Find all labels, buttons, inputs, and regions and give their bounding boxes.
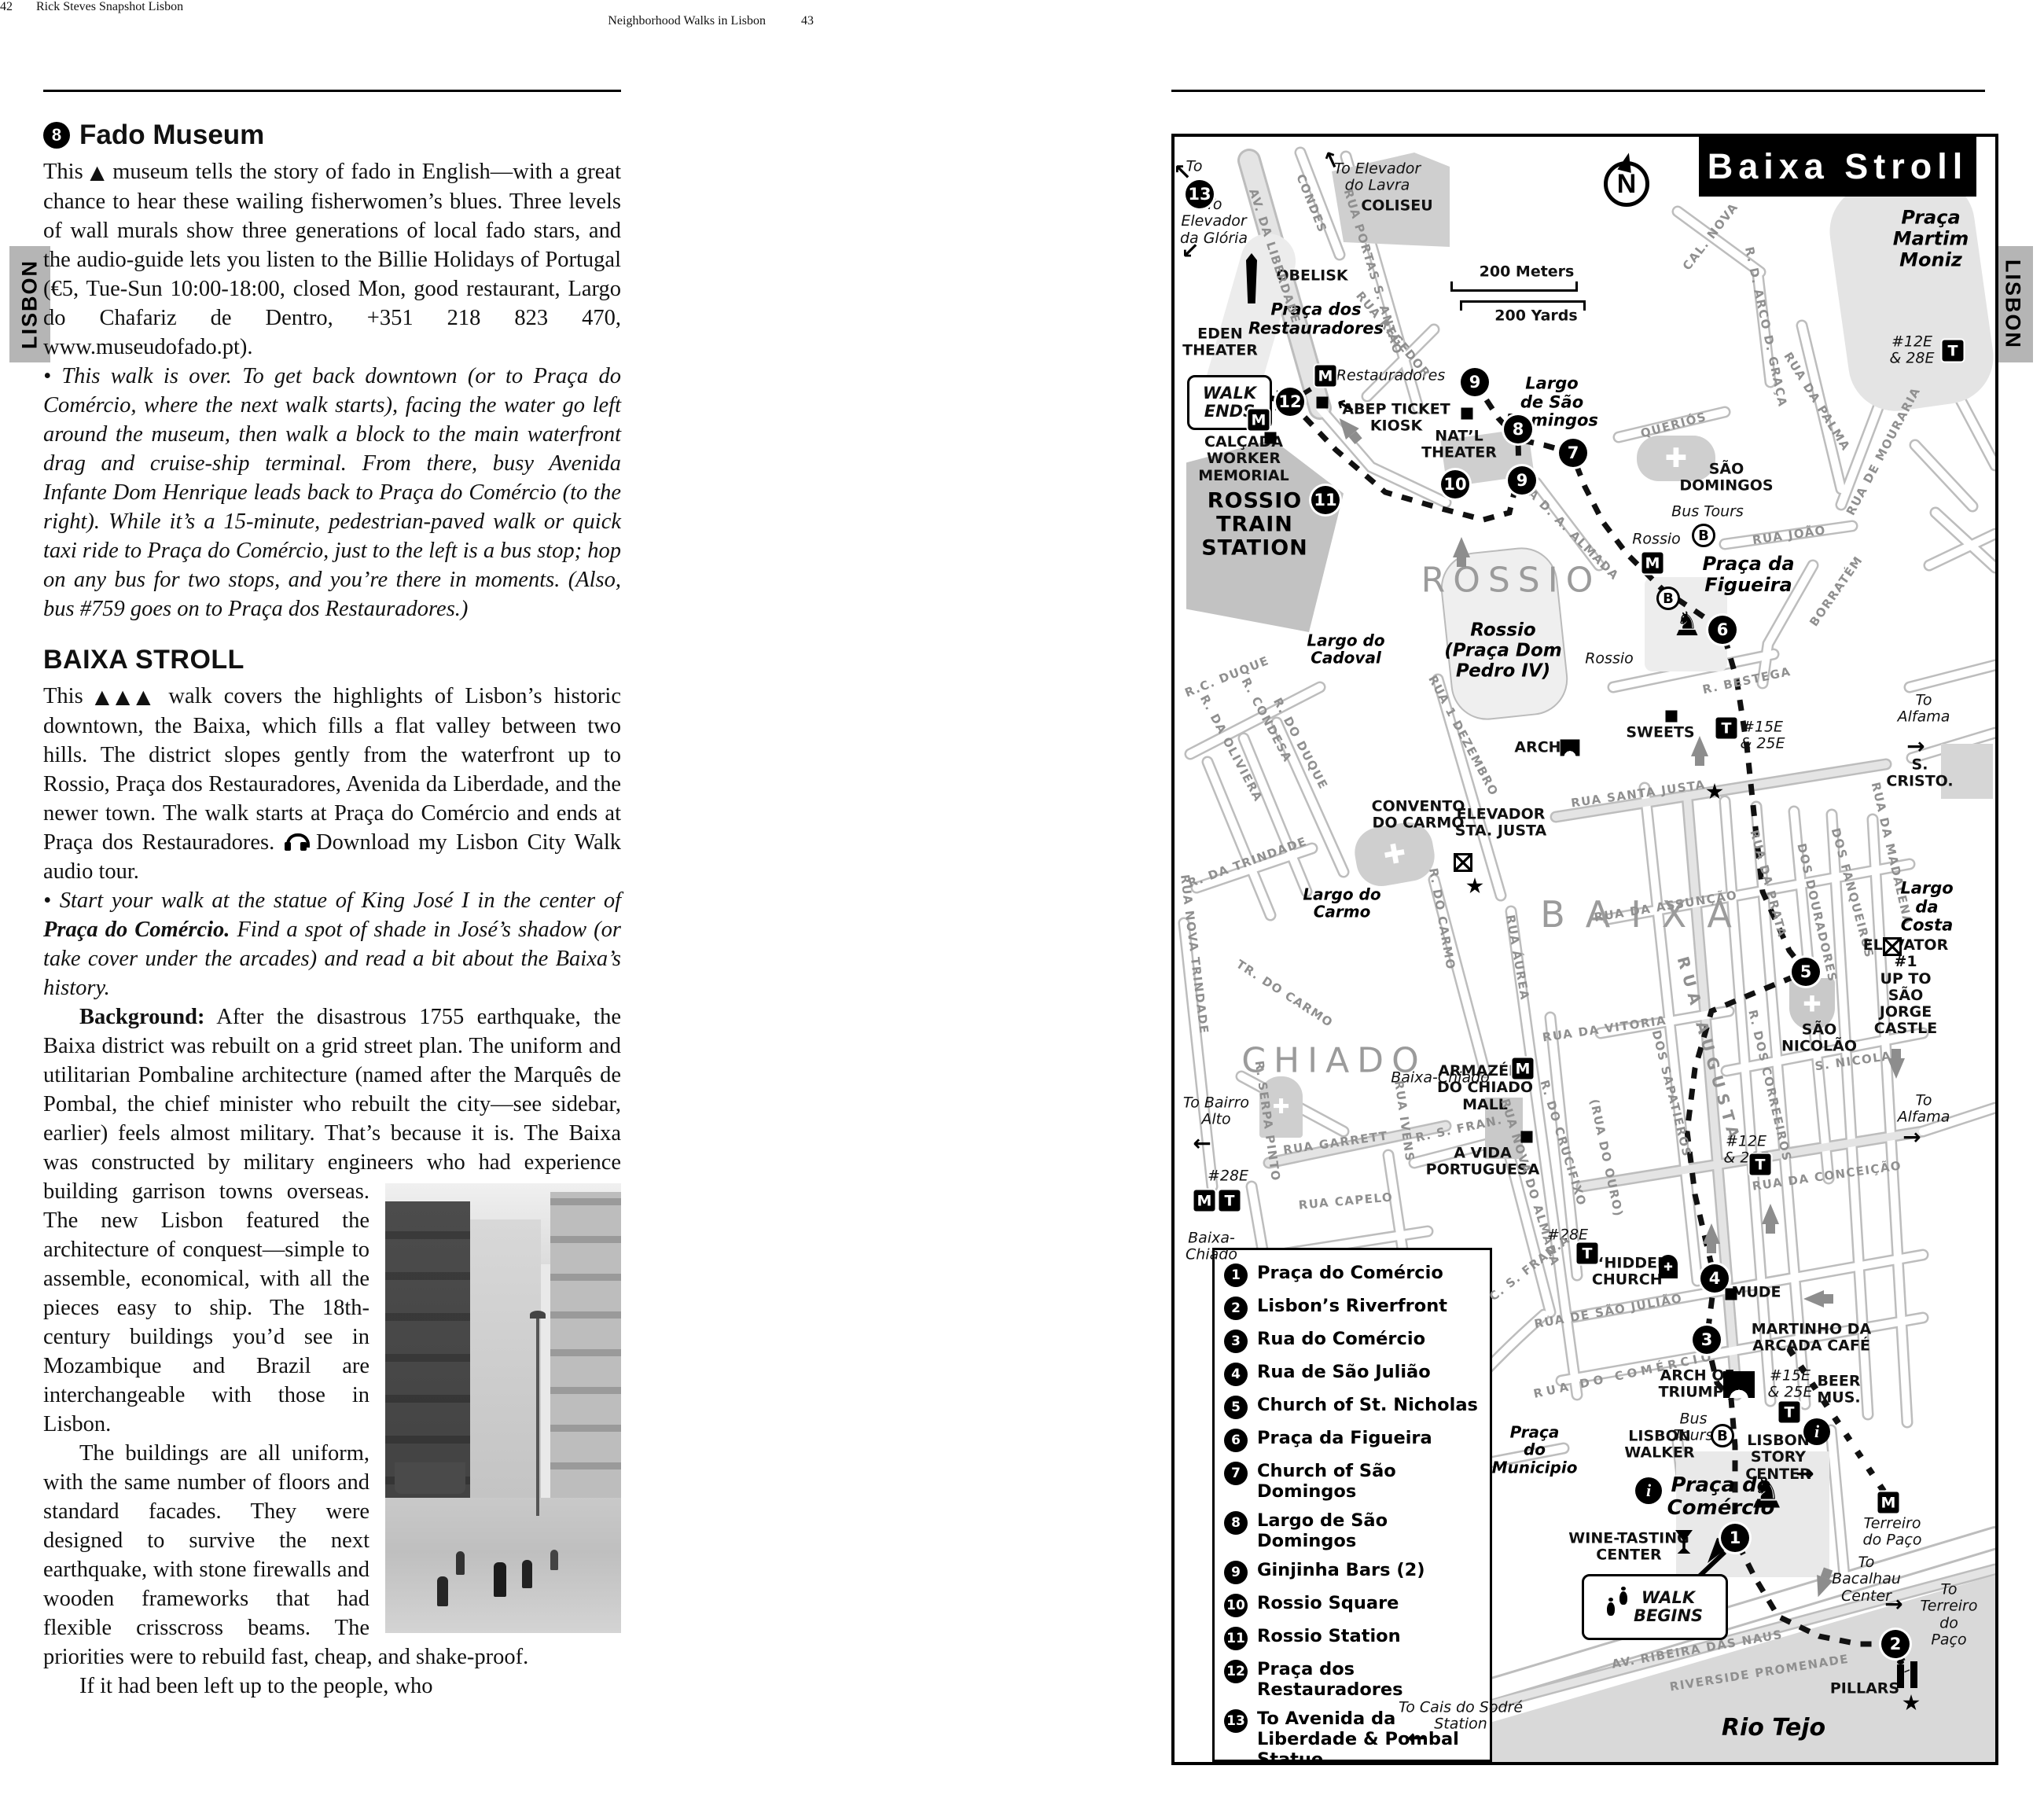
viewpoint-icon [1466, 877, 1483, 895]
pedestrian [494, 1562, 506, 1597]
baixa-stroll-map: ✚ ✚ ✚ ✚ Baixa Stroll WALK ENDS WALK BEGI… [1171, 134, 1998, 1765]
map-label: Praça do Municipio [1492, 1423, 1578, 1476]
closing-paragraph: If it had been left up to the people, wh… [43, 1672, 621, 1701]
tram-icon: T [1779, 1402, 1800, 1423]
street-label: R. DO CRUCIFIXO [1538, 1079, 1589, 1208]
route-direction-arrow-icon [1888, 1058, 1905, 1079]
map-stop-9: 9 [1508, 466, 1536, 495]
map-label: ELEVATOR #1 UP TO SÃO JORGE CASTLE [1861, 937, 1950, 1038]
sight-diamond-icon [1666, 711, 1678, 723]
page-number-left: 42 [0, 0, 13, 14]
map-stop-7: 7 [1559, 439, 1587, 467]
map-label: Bus Tours [1671, 503, 1744, 520]
map-label: Baixa- Chiado [1186, 1230, 1237, 1264]
tram-icon: T [1219, 1190, 1241, 1212]
map-label: SÃO DOMINGOS [1679, 462, 1773, 495]
map-stop-12: 12 [1276, 388, 1304, 416]
praca-comercio-bold: Praça do Comércio. [43, 918, 230, 942]
street-label: RUA CAPELO [1298, 1190, 1394, 1212]
map-stop-5: 5 [1792, 958, 1820, 986]
map-stop-8: 8 [1504, 415, 1532, 443]
map-label: Largo do Carmo [1303, 886, 1380, 921]
map-label: Rossio [1632, 531, 1681, 547]
sight-diamond-icon [1726, 1289, 1737, 1300]
route-direction-arrow-icon [1810, 1575, 1833, 1600]
route-direction-arrow-icon [1762, 1204, 1779, 1224]
map-label: EDEN THEATER [1182, 326, 1258, 360]
map-label: To Alfama [1898, 1093, 1950, 1127]
map-label: COLISEU [1361, 197, 1432, 214]
elevator-icon [1454, 853, 1472, 872]
map-label: Rossio [1585, 650, 1634, 667]
street-label: R. D. ARCO D. GRAÇA [1742, 245, 1789, 408]
map-stop-9: 9 [1461, 368, 1489, 396]
sight-diamond-icon [1521, 1131, 1533, 1143]
route-direction-arrow-icon [1453, 537, 1470, 557]
map-label: 200 Meters [1480, 263, 1575, 280]
street-label: RUA DE SÃO JULIÃO [1533, 1292, 1683, 1331]
rating-triangles: ▲▲▲ [95, 686, 157, 708]
tram-icon: T [1750, 1154, 1771, 1175]
street-label: RUA IVENS [1391, 1080, 1416, 1163]
street-label: C. S. FRAN.A [1487, 1233, 1573, 1304]
viewpoint-icon [1902, 1694, 1920, 1712]
streetlamp [536, 1319, 539, 1517]
street-label: BORRATÉM [1807, 554, 1866, 629]
left-text-column: 8 Fado Museum This ▲ museum tells the st… [43, 118, 621, 1701]
street-label: R. BESTEGA [1701, 665, 1792, 697]
street-label: (RUA DO OURO) [1587, 1098, 1625, 1218]
rating-triangle: ▲ [90, 161, 105, 183]
fado-museum-heading: 8 Fado Museum [43, 118, 621, 153]
street-label: TR. DO CARMO [1233, 958, 1335, 1030]
street-label: R. DA TRINDADE [1186, 835, 1309, 890]
background-label: Background: [79, 1005, 204, 1029]
page-header-right: Neighborhood Walks in Lisbon 43 [0, 14, 814, 28]
map-label: MUDE [1731, 1284, 1781, 1300]
map-label: #15E & 25E [1767, 1368, 1812, 1402]
fado-paragraph: This ▲ museum tells the story of fado in… [43, 157, 621, 362]
baixa-paragraph: This ▲▲▲ walk covers the highlights of L… [43, 682, 621, 886]
map-label: ROSSIO [1421, 561, 1601, 599]
book-title: Rick Steves Snapshot Lisbon [36, 0, 183, 14]
tram-icon: T [1577, 1243, 1598, 1264]
sight-diamond-icon [1461, 408, 1473, 420]
chapter-title: Neighborhood Walks in Lisbon [608, 14, 766, 28]
direction-arrow-icon: → [1796, 1461, 1814, 1485]
map-stop-3: 3 [1693, 1326, 1721, 1354]
elevator-icon [1883, 937, 1902, 956]
compass-icon: N [1604, 161, 1649, 207]
map-label: ELEVADOR STA. JUSTA [1455, 807, 1546, 840]
tram-icon: T [1943, 340, 1964, 362]
map-stop-1: 1 [1721, 1524, 1749, 1552]
map-label: Terreiro do Paço [1863, 1516, 1922, 1550]
direction-arrow-icon: → [1906, 734, 1925, 758]
map-label: PILLARS [1830, 1680, 1899, 1697]
map-label: #12E & 28E [1889, 334, 1934, 368]
pedestrian [522, 1560, 532, 1588]
sight-diamond-icon [1265, 432, 1277, 444]
street-label: RUA DA VITORIA [1542, 1014, 1667, 1045]
street-label: RUA GARRETT [1282, 1129, 1389, 1157]
street-label: RUA DA PRATA [1748, 829, 1789, 940]
street-label: RIVERSIDE PROMENADE [1669, 1653, 1850, 1694]
metro-icon: M [1878, 1492, 1899, 1514]
direction-arrow-icon: ↙ [1181, 238, 1199, 263]
street-label: CAL. NOVA [1680, 200, 1741, 273]
street-label: R. S. FRAN. [1414, 1113, 1504, 1145]
map-stop-6: 6 [1708, 616, 1737, 644]
statue-icon: ♞ [1753, 1474, 1780, 1508]
map-label: Rio Tejo [1722, 1715, 1825, 1742]
map-label: ROSSIO TRAIN STATION [1201, 490, 1308, 561]
background-paragraph: Background: After the disastrous 1755 ea… [43, 1002, 621, 1439]
bus-icon: B [1692, 524, 1715, 547]
direction-arrow-icon: → [1884, 1591, 1902, 1616]
header-rule-right [1171, 90, 1985, 92]
street-label: AV. RIBEIRA DAS NAUS [1611, 1628, 1784, 1672]
direction-arrow-icon: ← [1407, 1725, 1425, 1749]
map-stop-13: 13 [1186, 180, 1214, 208]
arch-icon [1723, 1371, 1755, 1398]
church-icon [1659, 1255, 1678, 1278]
map-label: NAT’L THEATER [1421, 429, 1497, 462]
metro-icon: M [1315, 366, 1336, 387]
header-rule-left [43, 90, 621, 92]
tram-icon: T [1716, 718, 1737, 739]
metro-icon: M [1248, 410, 1270, 431]
street-label: RUA ÁUREA [1503, 914, 1531, 1002]
map-label: To Bairro Alto [1183, 1095, 1249, 1129]
pedestrian [550, 1550, 558, 1570]
direction-arrow-icon: → [1902, 1124, 1921, 1149]
pedestrian [437, 1576, 448, 1606]
metro-icon: M [1194, 1190, 1215, 1212]
street-label: CONDES [1293, 172, 1329, 234]
metro-icon: M [1642, 553, 1664, 574]
info-icon: i [1635, 1477, 1662, 1504]
map-label: SÃO NICOLÃO [1781, 1022, 1857, 1056]
street-label: RUA NOVA TRINDADE [1178, 874, 1211, 1035]
street-label: RUA SANTA JUSTA [1570, 778, 1706, 811]
fado-museum-heading-text: Fado Museum [79, 118, 264, 153]
street-label: RUA DA PALMA [1781, 350, 1853, 454]
map-label: S. CRISTO. [1886, 757, 1953, 791]
map-stop-11: 11 [1311, 486, 1340, 514]
street-label: RUA 1 DEZEMBRO [1425, 673, 1500, 798]
map-label: #28E [1208, 1168, 1248, 1184]
pillars-icon [1894, 1660, 1921, 1691]
map-stop-2: 2 [1881, 1630, 1910, 1658]
map-label: WINE-TASTING CENTER [1568, 1531, 1689, 1565]
viewpoint-icon [1706, 783, 1723, 800]
headphone-icon [284, 832, 307, 851]
info-icon: i [1803, 1418, 1830, 1445]
map-label: Rossio (Praça Dom Pedro IV) [1444, 620, 1562, 681]
stop-8-badge: 8 [43, 122, 70, 149]
street-label: RUA JOÃO [1752, 524, 1827, 547]
route-direction-arrow-icon [1691, 736, 1708, 756]
page-number-right: 43 [801, 14, 814, 28]
obelisk-icon [1246, 253, 1257, 303]
route-direction-arrow-icon [1703, 1223, 1720, 1244]
bus-icon: B [1711, 1424, 1734, 1447]
baixa-stroll-heading: BAIXA STROLL [43, 644, 621, 675]
map-label: 200 Yards [1494, 307, 1577, 324]
map-label: #15E & 25E [1740, 719, 1785, 753]
street-photo [385, 1183, 621, 1633]
street-label: RUA DE MOURARIA [1844, 385, 1923, 518]
street-label: R. DO CARMO [1426, 867, 1457, 971]
street-label: QUERIÓS [1639, 410, 1708, 441]
direction-arrow-icon: ↖ [1175, 160, 1192, 184]
map-label: Largo do Cadoval [1307, 632, 1384, 668]
statue-icon: ♞ [1676, 609, 1697, 635]
direction-arrow-icon: ← [1193, 1131, 1211, 1155]
map-label: SWEETS [1626, 724, 1694, 741]
map-label: Largo da Costa [1893, 880, 1961, 936]
baixa-bullet: • Start your walk at the statue of King … [43, 886, 621, 1002]
map-label: CONVENTO DO CARMO [1372, 799, 1465, 833]
metro-icon: M [1513, 1058, 1534, 1080]
map-stop-10: 10 [1441, 470, 1469, 498]
map-label: BEER MUS. [1817, 1374, 1860, 1407]
map-label: To Alfama [1898, 693, 1950, 726]
map-label: ARCH [1514, 739, 1561, 756]
map-label: Bus Tours [1674, 1411, 1714, 1445]
map-label: Praça Martim Moniz [1893, 208, 1969, 271]
pedestrian [456, 1551, 465, 1575]
arch-icon [1561, 739, 1580, 756]
map-label: Praça da Figueira [1702, 554, 1794, 596]
sight-diamond-icon [1317, 397, 1329, 409]
street-label: RUA DA CONCEIÇÃO [1752, 1159, 1902, 1193]
street-label: DOS SAPATIEROS [1649, 1028, 1693, 1158]
map-label: To Terreiro do Paço [1921, 1581, 1978, 1648]
map-label: MARTINHO DA ARCADA CAFÉ [1752, 1322, 1871, 1355]
fado-bullet: • This walk is over. To get back downtow… [43, 362, 621, 623]
page-header-left: 42 Rick Steves Snapshot Lisbon [0, 0, 578, 14]
route-direction-arrow-icon [1803, 1290, 1824, 1308]
